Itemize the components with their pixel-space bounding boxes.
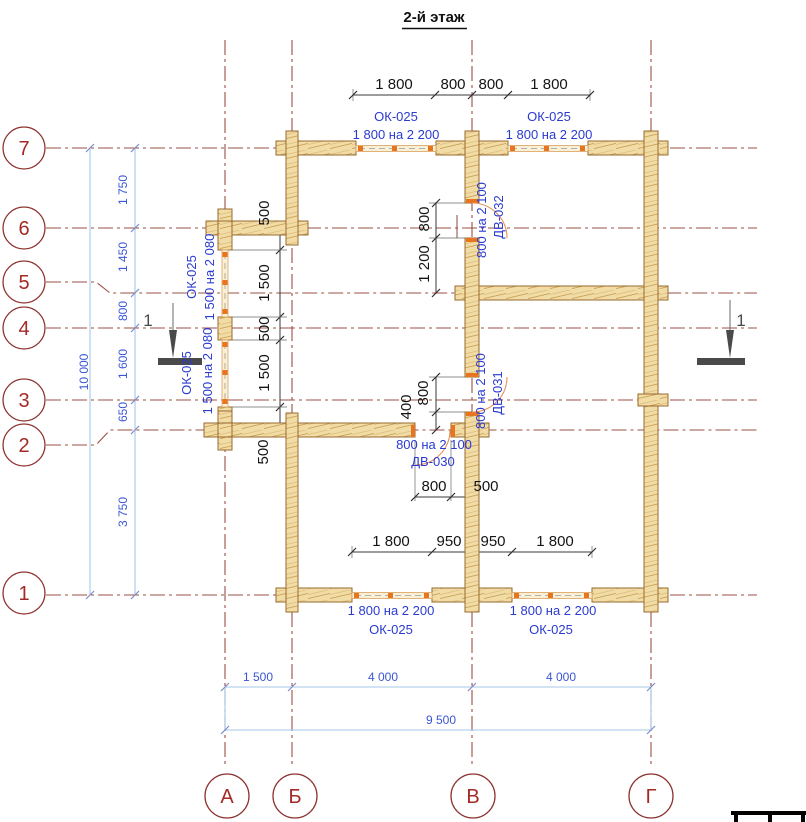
dim-bottom-span: 1 500 bbox=[243, 670, 273, 684]
dim-wall-a: 1 500 bbox=[256, 264, 273, 302]
dim-door031: 400 bbox=[398, 394, 415, 419]
wall-row5 bbox=[455, 286, 668, 300]
blue-dimension-lines bbox=[86, 144, 655, 734]
dim-wall-a: 500 bbox=[255, 439, 272, 464]
dim-left-total: 10 000 bbox=[77, 353, 91, 390]
axis-row-label: 7 bbox=[18, 138, 29, 160]
axis-col-label: Г bbox=[646, 786, 657, 808]
dim-top: 1 800 bbox=[530, 76, 568, 93]
axis-row-label: 5 bbox=[18, 272, 29, 294]
dim-left-outer: 800 bbox=[116, 301, 130, 321]
window-code: ОК-025 bbox=[527, 109, 571, 124]
dim-left-outer: 1 750 bbox=[116, 175, 130, 205]
log-stub bbox=[276, 588, 286, 602]
dim-left-outer: 3 750 bbox=[116, 497, 130, 527]
window-size: 1 800 на 2 200 bbox=[353, 127, 440, 142]
window-size: 1 800 на 2 200 bbox=[506, 127, 593, 142]
wall-col-a-1 bbox=[218, 221, 232, 250]
title-block-corner bbox=[731, 811, 806, 822]
section-label-right: 1 bbox=[736, 311, 745, 330]
window-code: ОК-025 bbox=[529, 622, 573, 637]
dim-door032: 1 200 bbox=[416, 245, 433, 283]
dim-bottom-inner: 950 bbox=[480, 533, 505, 550]
dim-bottom-span: 4 000 bbox=[546, 670, 576, 684]
axis-row-label: 1 bbox=[18, 583, 29, 605]
wall-col-b-top bbox=[286, 131, 298, 245]
axis-row-label: 3 bbox=[18, 390, 29, 412]
window-code: ОК-025 bbox=[374, 109, 418, 124]
blue-dimension-texts: 1 750 1 450 800 1 600 650 3 750 10 000 1… bbox=[77, 175, 576, 727]
log-stub bbox=[218, 209, 232, 221]
axis-bubbles: 7 6 5 4 3 2 1 А Б В Г bbox=[3, 127, 673, 818]
log-stub-row3 bbox=[638, 394, 668, 406]
door-size: 800 на 2 100 bbox=[473, 353, 488, 429]
log-stub bbox=[204, 423, 218, 437]
dim-left-outer: 1 600 bbox=[116, 349, 130, 379]
section-label-left: 1 bbox=[143, 311, 152, 330]
log-stub bbox=[218, 411, 232, 423]
log-stub bbox=[276, 141, 286, 155]
axis-col-label: Б bbox=[288, 786, 301, 808]
door-size: 800 на 2 100 bbox=[474, 182, 489, 258]
drawing-title: 2-й этаж bbox=[403, 9, 465, 26]
window-frame-marks bbox=[223, 146, 590, 598]
window-size: 1 500 на 2 080 bbox=[202, 234, 217, 321]
dim-bottom-inner: 950 bbox=[436, 533, 461, 550]
wall-row2-left bbox=[218, 423, 415, 437]
dim-wall-a: 1 500 bbox=[256, 354, 273, 392]
windows bbox=[222, 146, 592, 599]
window-size: 1 800 на 2 200 bbox=[348, 603, 435, 618]
door-030-jamb bbox=[451, 425, 455, 437]
window-size: 1 500 на 2 080 bbox=[200, 328, 215, 415]
window-code: ОК-025 bbox=[184, 255, 199, 299]
axis-col-label: А bbox=[220, 786, 234, 808]
log-stub bbox=[218, 437, 232, 450]
axis-col-label: В bbox=[466, 786, 479, 808]
dim-top: 800 bbox=[440, 76, 465, 93]
door-code: ДВ-032 bbox=[491, 195, 506, 239]
dim-door030: 500 bbox=[473, 478, 498, 495]
dim-bottom-total: 9 500 bbox=[426, 713, 456, 727]
wall-col-g bbox=[644, 131, 658, 612]
log-stub bbox=[206, 221, 218, 235]
dim-bottom-span: 4 000 bbox=[368, 670, 398, 684]
dim-door031: 800 bbox=[415, 380, 432, 405]
dim-bottom-inner: 1 800 bbox=[372, 533, 410, 550]
dim-wall-a: 500 bbox=[256, 200, 273, 225]
door-code: ДВ-031 bbox=[490, 371, 505, 415]
opening-labels: ОК-025 1 800 на 2 200 ОК-025 1 800 на 2 … bbox=[179, 109, 596, 637]
dim-top: 800 bbox=[478, 76, 503, 93]
window-size: 1 800 на 2 200 bbox=[510, 603, 597, 618]
door-030-jamb bbox=[411, 425, 415, 437]
door-size: 800 на 2 100 bbox=[396, 437, 472, 452]
dim-wall-a: 500 bbox=[256, 316, 273, 341]
door-code: ДВ-030 bbox=[411, 454, 455, 469]
log-stub bbox=[298, 221, 308, 235]
dim-left-outer: 1 450 bbox=[116, 242, 130, 272]
dim-door032: 800 bbox=[416, 206, 433, 231]
dim-door030: 800 bbox=[421, 478, 446, 495]
section-mark-right: 1 bbox=[697, 300, 746, 365]
floor-plan-canvas: 1 1 7 6 5 4 3 2 1 А Б В Г 1 800 800 800 bbox=[0, 0, 806, 822]
wall-col-a-2 bbox=[218, 317, 232, 340]
dim-bottom-inner: 1 800 bbox=[536, 533, 574, 550]
axis-row-label: 4 bbox=[18, 318, 29, 340]
dim-left-outer: 650 bbox=[116, 402, 130, 422]
log-stub bbox=[658, 141, 668, 155]
window-code: ОК-025 bbox=[369, 622, 413, 637]
log-stub bbox=[658, 588, 668, 602]
axis-row-label: 2 bbox=[18, 435, 29, 457]
axis-row-label: 6 bbox=[18, 218, 29, 240]
window-code: ОК-025 bbox=[179, 351, 194, 395]
dim-top: 1 800 bbox=[375, 76, 413, 93]
wall-col-b-bottom bbox=[286, 413, 298, 612]
